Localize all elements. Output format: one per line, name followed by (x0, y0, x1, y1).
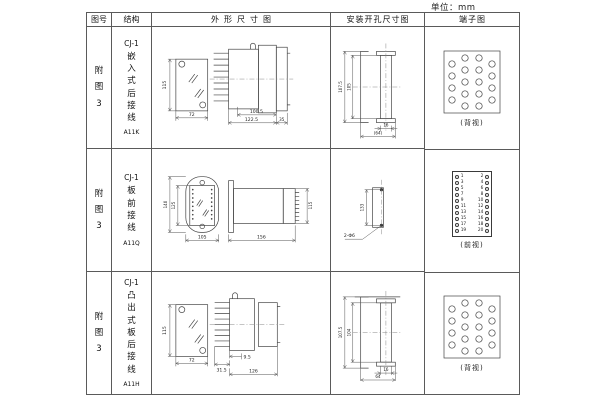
dim-label: 107.5 (338, 326, 343, 338)
terminal-circle (485, 217, 489, 221)
model-label: CJ-1 (124, 173, 139, 182)
terminal-row: 17 18 (455, 223, 489, 227)
terminal-diagram-rear (425, 49, 519, 115)
dim-label: 156 (257, 234, 266, 240)
model-label: CJ-1 (124, 278, 139, 287)
datasheet-page: 单位：mm 图号 结构 外形尺寸图 安装开孔尺寸图 端子图 附图3 CJ-1 嵌… (0, 0, 600, 400)
header-structure: 结构 (112, 13, 152, 27)
terminal-circle (485, 193, 489, 197)
dim-label: 100.5 (250, 109, 263, 115)
code-label: A11H (123, 381, 139, 388)
dim-label: 126 (249, 368, 258, 374)
terminal-cell: 1 2 3 4 5 (425, 149, 519, 273)
dim-label: 9.5 (243, 354, 250, 360)
structure-cell: CJ-1 板前接线 A11Q (112, 149, 152, 272)
hole-callout: 2-Φ6 (344, 233, 355, 239)
dim-label: 107.5 (338, 81, 343, 93)
side-view: 156 115 (229, 181, 314, 243)
header-mounting: 安装开孔尺寸图 (331, 13, 425, 27)
terminal-number: 5 (461, 187, 464, 191)
terminal-number: 16 (478, 217, 483, 221)
dim-label: 133 (360, 203, 365, 211)
terminal-number: 9 (461, 199, 464, 203)
terminal-row: 15 16 (455, 217, 489, 221)
terminal-caption: (背视) (460, 363, 483, 373)
terminal-number: 11 (461, 205, 466, 209)
terminal-number: 3 (461, 181, 464, 185)
terminal-circle (485, 175, 489, 179)
terminal-circle (485, 205, 489, 209)
front-view: 140 125 105 (163, 177, 219, 243)
fig-no-label: 附图3 (94, 186, 105, 234)
structure-cell: CJ-1 凸出式板后接线 A11H (112, 272, 152, 394)
terminal-row: 9 10 (455, 199, 489, 203)
terminal-number: 17 (461, 223, 466, 227)
terminal-number: 1 (461, 175, 464, 179)
terminal-row: 1 2 (455, 175, 489, 179)
mounting-drawing-a11h: 107.5 104 16 64 (331, 272, 424, 394)
mounting-drawing-a11q: 133 2-Φ6 (331, 149, 424, 271)
dim-label: 31.5 (217, 367, 227, 373)
terminal-row: 11 12 (455, 205, 489, 209)
terminal-circle (455, 199, 459, 203)
dim-label: 140 (163, 200, 168, 208)
dimension-table: 图号 结构 外形尺寸图 安装开孔尺寸图 端子图 附图3 CJ-1 嵌入式后接线 … (86, 12, 520, 395)
dim-label: 104 (346, 328, 351, 336)
terminal-circles (448, 299, 494, 353)
outline-drawing-a11h: 115 72 9.5 31.5 126 (152, 272, 330, 394)
dim-label: 115 (162, 326, 168, 335)
code-label: A11Q (123, 240, 139, 247)
terminal-number: 20 (478, 229, 483, 233)
front-view: 115 72 (162, 59, 208, 121)
terminal-row: 19 20 (455, 229, 489, 233)
header-terminal: 端子图 (425, 13, 519, 27)
dim-label: 115 (162, 81, 168, 90)
header-outline: 外形尺寸图 (152, 13, 331, 27)
terminal-circles (448, 54, 494, 108)
terminal-circle (485, 211, 489, 215)
side-view: 9.5 31.5 126 (210, 293, 286, 377)
terminal-circle (485, 199, 489, 203)
terminal-number: 10 (478, 199, 483, 203)
terminal-row: 13 14 (455, 211, 489, 215)
dim-label: 105 (346, 83, 351, 91)
header-fig-no: 图号 (87, 13, 112, 27)
terminal-number: 4 (481, 181, 484, 185)
fig-no-label: 附图3 (94, 309, 105, 357)
mounting-cell: 107.5 104 16 64 (331, 272, 425, 394)
side-view: 100.5 122.5 35 (210, 43, 294, 125)
outline-drawing-a11q: 140 125 105 156 115 (152, 149, 330, 271)
dim-label: 72 (189, 112, 195, 118)
cutout-profile: 107.5 105 16 (64) (338, 43, 400, 138)
dim-label: 115 (308, 201, 313, 209)
mount-type-label: 嵌入式后接线 (126, 51, 138, 125)
outline-drawing-a11k: 115 72 100.5 122.5 35 (152, 27, 330, 148)
terminal-circle (485, 229, 489, 233)
terminal-number: 2 (481, 175, 484, 179)
dim-label: 122.5 (245, 117, 258, 123)
mounting-cell: 107.5 105 16 (64) (331, 27, 425, 149)
terminal-circle (455, 211, 459, 215)
terminal-row: 3 4 (455, 181, 489, 185)
terminal-number: 13 (461, 211, 466, 215)
dim-label: 16 (383, 367, 389, 372)
terminal-number: 15 (461, 217, 466, 221)
terminal-number: 12 (478, 205, 483, 209)
outline-cell: 115 72 100.5 122.5 35 (152, 27, 331, 149)
front-view: 115 72 (162, 305, 208, 367)
terminal-caption: (背视) (460, 118, 483, 128)
dim-label: 16 (383, 123, 389, 128)
model-label: CJ-1 (124, 39, 139, 48)
outline-cell: 115 72 9.5 31.5 126 (152, 272, 331, 394)
terminal-circle (455, 187, 459, 191)
terminal-circle (455, 229, 459, 233)
terminal-circle (455, 181, 459, 185)
fig-no-cell: 附图3 (87, 149, 112, 272)
terminal-circle (455, 223, 459, 227)
terminal-row: 5 6 (455, 187, 489, 191)
fig-no-cell: 附图3 (87, 27, 112, 149)
terminal-circle (455, 217, 459, 221)
outline-cell: 140 125 105 156 115 (152, 149, 331, 272)
terminal-circle (485, 181, 489, 185)
dim-label: 125 (171, 201, 176, 209)
mount-type-label: 板前接线 (126, 185, 138, 234)
fig-no-cell: 附图3 (87, 272, 112, 394)
fig-no-label: 附图3 (94, 63, 105, 111)
terminal-circle (455, 205, 459, 209)
terminal-caption: (前视) (460, 240, 483, 250)
dim-label: 64 (375, 374, 381, 379)
drill-plan: 133 2-Φ6 (344, 180, 384, 239)
dim-label: 35 (279, 117, 285, 122)
dim-label: 72 (189, 357, 195, 363)
dim-label: 105 (198, 234, 207, 240)
structure-cell: CJ-1 嵌入式后接线 A11K (112, 27, 152, 149)
terminal-number: 6 (481, 187, 484, 191)
terminal-number: 18 (478, 223, 483, 227)
terminal-circle (485, 223, 489, 227)
terminal-diagram-rear (425, 294, 519, 360)
terminal-diagram-front: 1 2 3 4 5 (452, 171, 492, 237)
terminal-circle (455, 193, 459, 197)
terminal-circle (455, 175, 459, 179)
terminal-number: 14 (478, 211, 483, 215)
mounting-drawing-a11k: 107.5 105 16 (64) (331, 27, 424, 148)
dim-label: (64) (374, 130, 383, 135)
terminal-circle (485, 187, 489, 191)
terminal-number: 19 (461, 229, 466, 233)
mount-type-label: 凸出式板后接线 (126, 290, 138, 376)
terminal-number: 8 (481, 193, 484, 197)
terminal-cell: (背视) (425, 272, 519, 394)
terminal-row: 7 8 (455, 193, 489, 197)
terminal-cell: (背视) (425, 27, 519, 150)
cutout-profile: 107.5 104 16 64 (338, 291, 400, 382)
code-label: A11K (124, 129, 140, 136)
mounting-cell: 133 2-Φ6 (331, 149, 425, 272)
terminal-number: 7 (461, 193, 464, 197)
